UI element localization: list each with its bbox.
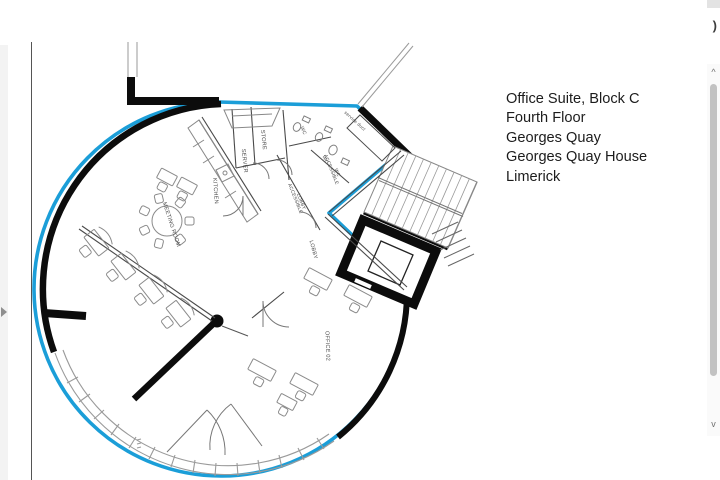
scrollbar-corner [707,0,720,8]
vertical-scrollbar[interactable]: ^ v [707,64,720,436]
suite-boundary-highlight [34,102,408,476]
address-line: Georges Quay House [506,148,706,167]
viewer-page: MEETING ROOM KITCHEN SERVER STORE WC WC … [0,0,720,480]
label-kitchen: KITCHEN [211,178,219,204]
expand-panel-icon[interactable] [1,307,7,317]
address-line: Office Suite, Block C [506,90,706,109]
label-office-02: OFFICE 02 [323,331,330,361]
scroll-down-icon[interactable]: v [707,418,720,432]
floorplan-drawing: MEETING ROOM KITCHEN SERVER STORE WC WC … [0,0,720,480]
curtain-wall-glazing [55,350,334,476]
scrollbar-thumb[interactable] [710,84,717,376]
label-lobby: LOBBY [308,240,319,260]
address-line: Fourth Floor [506,109,706,128]
label-wc-1: WC [299,125,308,136]
furniture [74,168,372,419]
scroll-up-icon[interactable]: ^ [707,66,720,80]
address-block: Office Suite, Block C Fourth Floor Georg… [506,90,706,187]
door-swings [167,160,316,455]
room-labels: MEETING ROOM KITCHEN SERVER STORE WC WC … [161,110,367,361]
address-line: Limerick [506,168,706,187]
label-server: SERVER [240,149,248,174]
left-panel-rail [0,45,8,480]
kitchen-counter [188,108,280,222]
address-line: Georges Quay [506,129,706,148]
partial-glyph: ) [713,18,717,33]
label-store: STORE [259,130,267,151]
